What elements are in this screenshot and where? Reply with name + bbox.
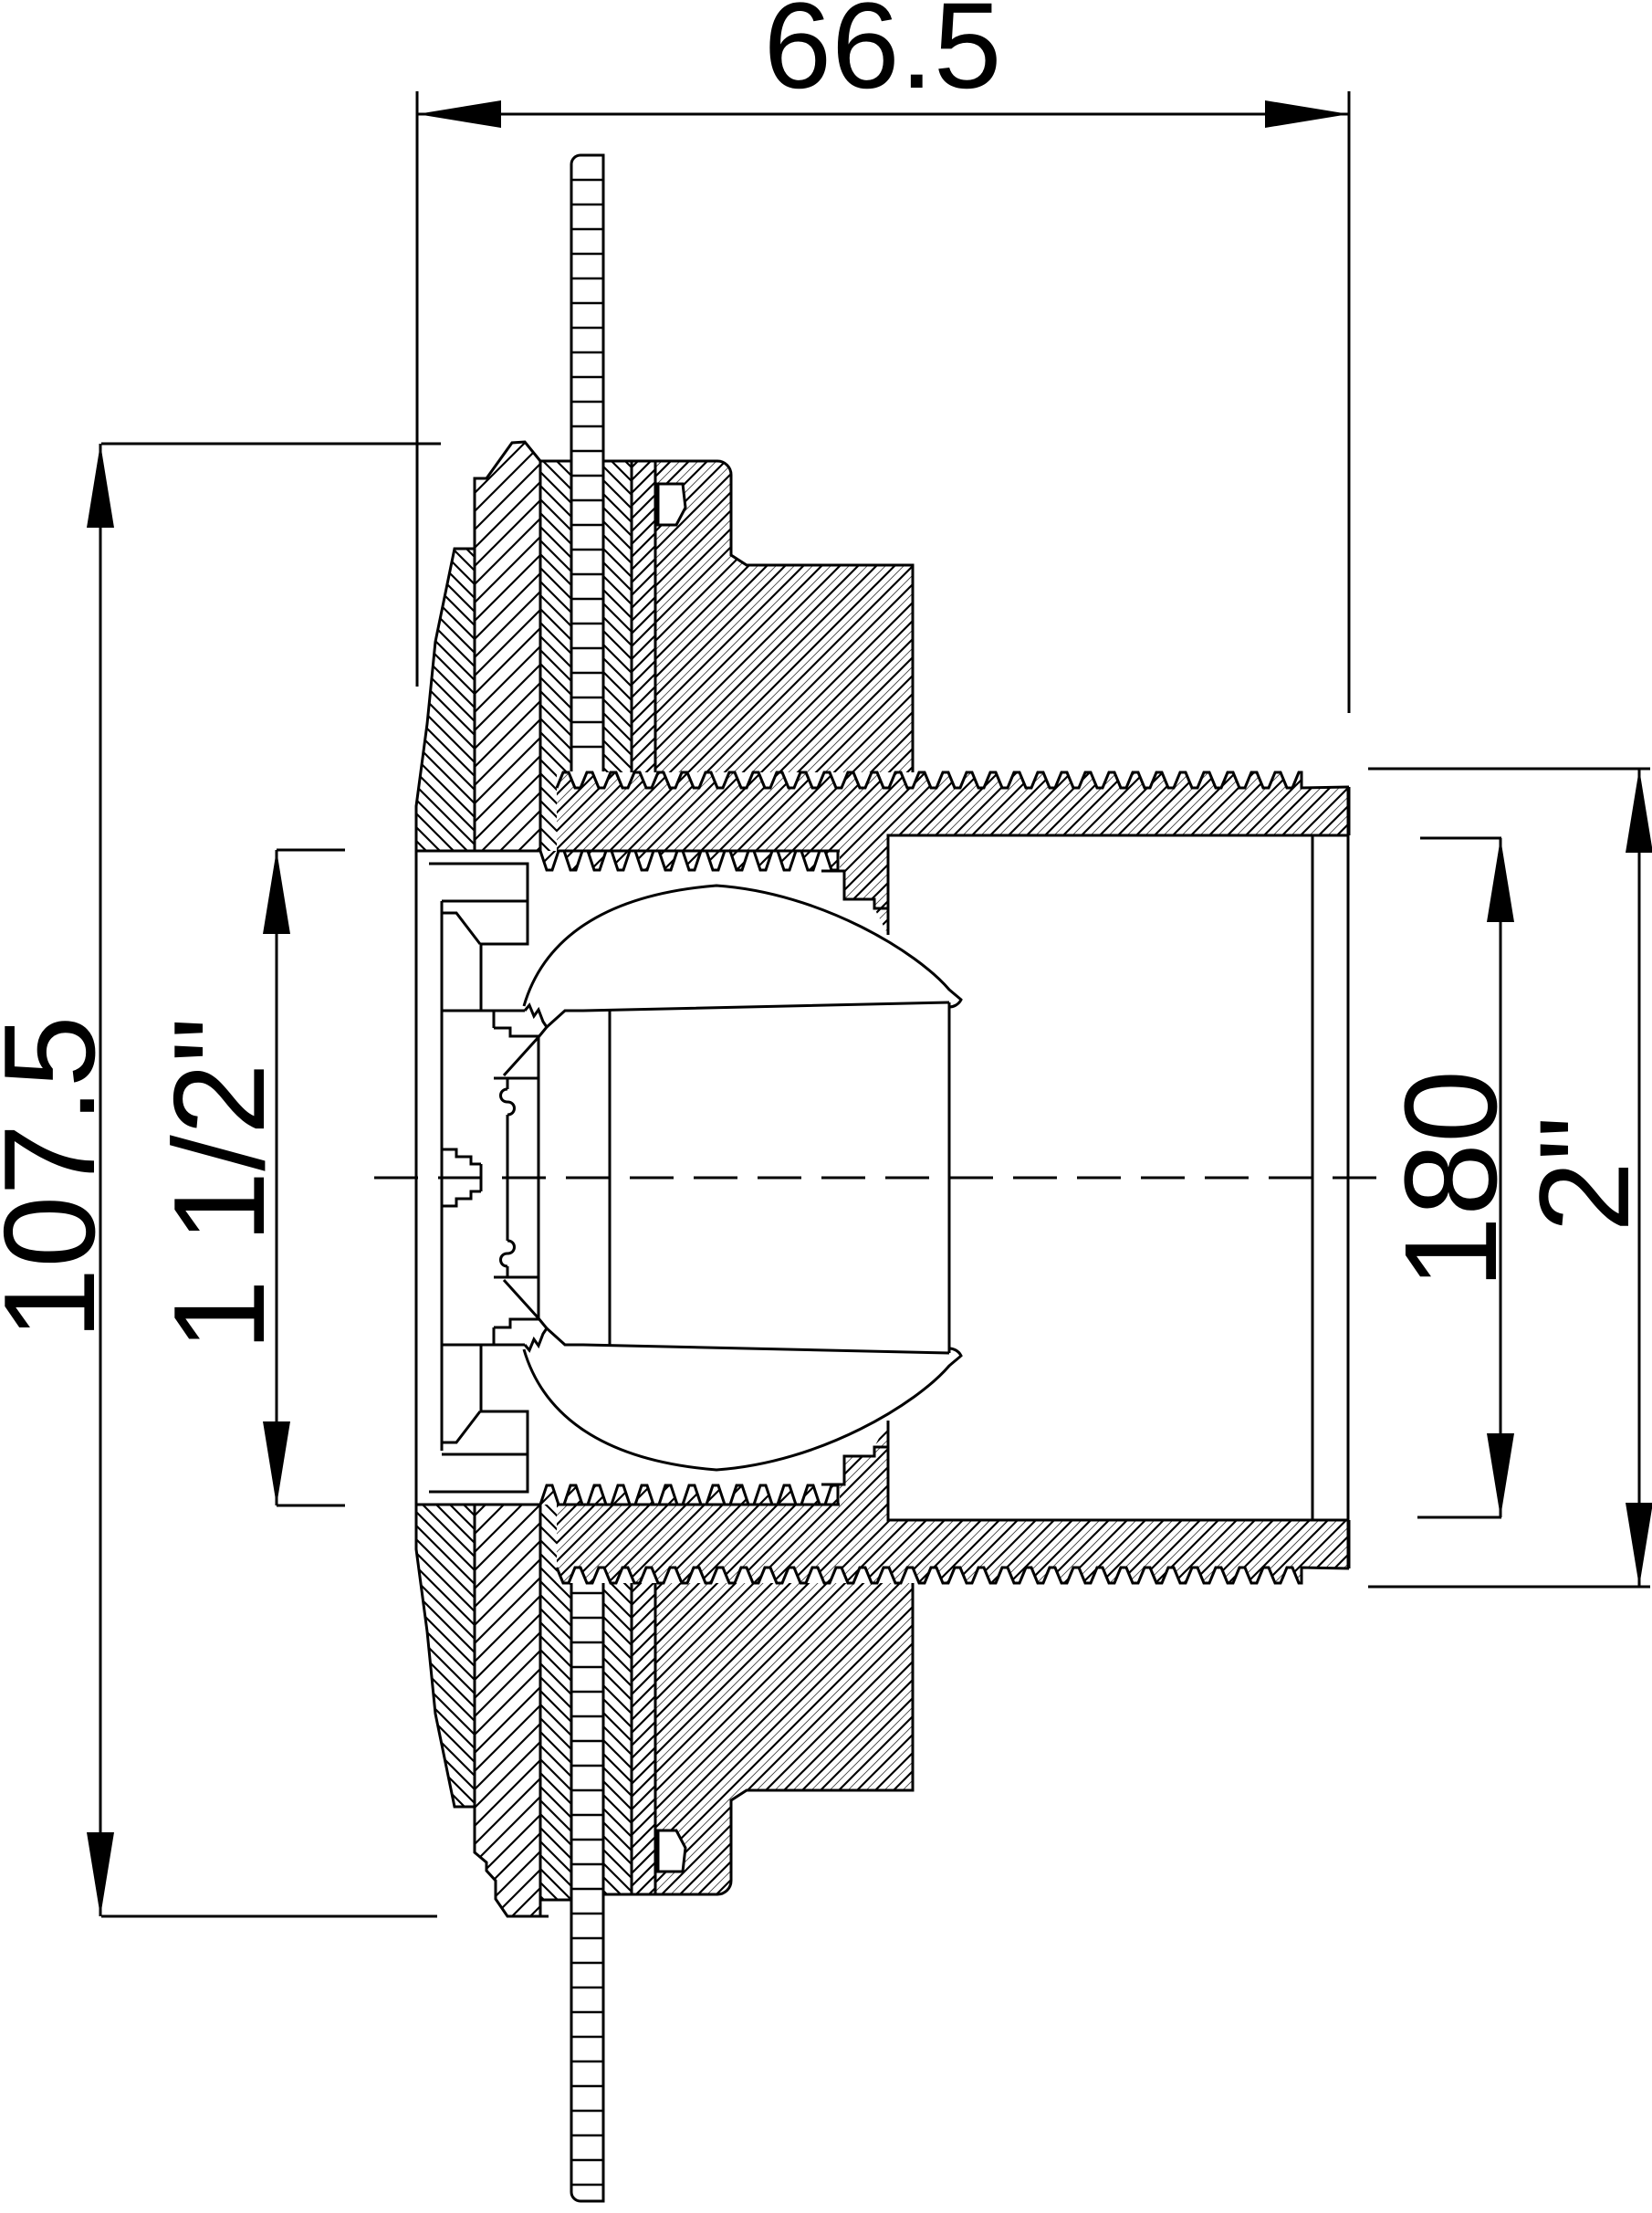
svg-text:180: 180	[1377, 1070, 1524, 1289]
svg-text:2": 2"	[1512, 1116, 1652, 1232]
svg-text:66.5: 66.5	[764, 0, 1002, 114]
svg-text:1 1/2": 1 1/2"	[147, 1017, 292, 1351]
svg-text:107.5: 107.5	[0, 1015, 122, 1339]
